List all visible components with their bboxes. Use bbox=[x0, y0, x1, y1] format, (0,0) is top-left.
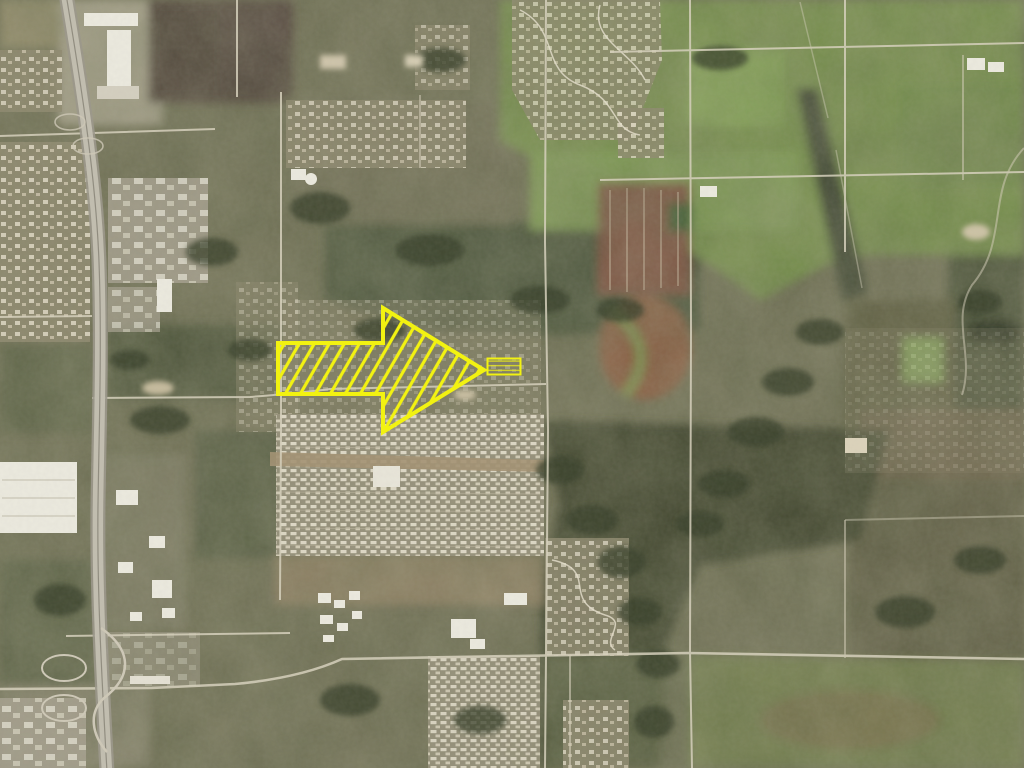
highlighted-parcel bbox=[488, 359, 521, 375]
photo-grain-overlay bbox=[0, 0, 1024, 768]
aerial-map bbox=[0, 0, 1024, 768]
